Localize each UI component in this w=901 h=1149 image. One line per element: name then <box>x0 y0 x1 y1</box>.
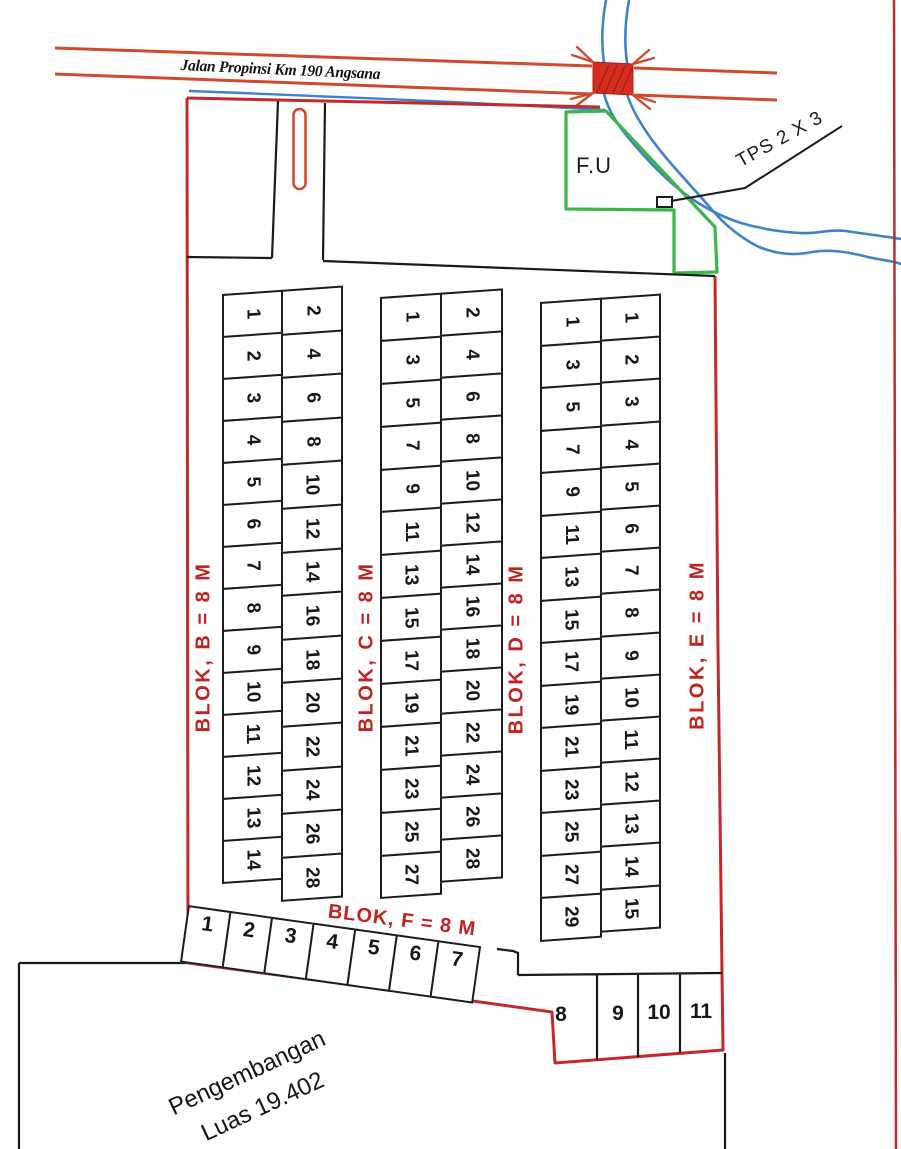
plot-number: 15 <box>619 897 641 920</box>
plot-number: 11 <box>690 1000 712 1024</box>
plot-number: 17 <box>560 651 582 674</box>
plot-number: 23 <box>400 778 422 801</box>
plot-cell: 29 <box>540 893 602 942</box>
blok-d-column: 1357911131517192123252729 <box>540 298 602 942</box>
plot-number: 1 <box>241 308 263 320</box>
plot-cell: 3 <box>380 336 442 385</box>
plot-number: 13 <box>560 566 582 589</box>
plot-cell: 8 <box>600 589 661 637</box>
plot-cell: 15 <box>600 884 661 932</box>
road-line-lower <box>55 74 777 100</box>
lower-step-lines <box>497 949 722 1060</box>
plot-number: 4 <box>619 438 641 450</box>
site-plan-canvas: Jalan Propinsi Km 190 Angsana F.U TPS 2 … <box>0 0 901 1149</box>
plot-cell: 3 <box>222 374 283 422</box>
plot-cell: 15 <box>380 593 442 642</box>
plot-number: 26 <box>460 805 482 828</box>
plot-number: 5 <box>560 401 582 413</box>
plot-number: 8 <box>555 1003 567 1027</box>
blok-b-strip: 1234567891011121314 24681012141618202224… <box>222 286 343 907</box>
plot-number: 19 <box>560 693 582 716</box>
plot-number: 13 <box>241 807 263 830</box>
plot-cell: 3 <box>540 340 602 389</box>
plot-number: 29 <box>560 906 582 929</box>
blok-c-strip: 13579111315171921232527 2468101214161820… <box>380 288 503 899</box>
plot-cell: 10 <box>222 668 283 716</box>
plot-number: 28 <box>460 847 482 870</box>
plot-number: 4 <box>301 348 323 360</box>
plot-cell: 12 <box>281 504 343 554</box>
plot-number: 9 <box>560 486 582 498</box>
plot-number: 25 <box>560 821 582 844</box>
plot-number: 2 <box>460 307 482 319</box>
plot-number: 21 <box>560 736 582 759</box>
median-island <box>294 109 306 189</box>
plot-number: 27 <box>400 864 422 887</box>
plot-cell: 20 <box>440 666 503 714</box>
plot-cell: 10 <box>600 673 661 721</box>
plot-cell: 7 <box>429 940 481 1004</box>
plot-number: 3 <box>619 396 641 408</box>
plot-number: 15 <box>400 606 422 629</box>
plot-cell: 18 <box>440 624 503 672</box>
plot-cell: 13 <box>222 794 283 842</box>
plot-number: 6 <box>301 392 323 404</box>
plot-number: 12 <box>241 765 263 788</box>
plot-cell: 4 <box>440 330 503 378</box>
plot-cell: 10 <box>440 456 503 504</box>
plot-cell: 4 <box>600 420 661 468</box>
plot-cell: 12 <box>440 498 503 546</box>
plot-cell: 11 <box>540 510 602 559</box>
plot-number: 6 <box>408 941 423 966</box>
plot-cell: 9 <box>540 468 602 517</box>
plot-cell: 16 <box>281 591 343 641</box>
plot-cell: 26 <box>281 809 343 859</box>
plot-cell: 22 <box>281 721 343 771</box>
blok-e-label: BLOK, E = 8 M <box>687 560 710 730</box>
plot-number: 11 <box>560 524 582 546</box>
plot-cell: 6 <box>222 500 283 548</box>
facility-boundary <box>566 111 717 273</box>
plot-cell: 1 <box>540 298 602 347</box>
plot-cell: 26 <box>440 792 503 840</box>
plot-cell: 28 <box>281 852 343 902</box>
plot-cell: 4 <box>281 329 343 379</box>
tps-marker <box>657 197 672 207</box>
blok-b-label: BLOK, B = 8 M <box>193 562 216 733</box>
plot-cell: 13 <box>380 550 442 599</box>
plot-number: 25 <box>400 821 422 844</box>
plot-cell: 16 <box>440 582 503 630</box>
plot-number: 11 <box>242 723 264 745</box>
plot-number: 7 <box>560 444 582 456</box>
plot-number: 1 <box>400 311 422 323</box>
plot-number: 5 <box>241 476 263 488</box>
plot-number: 3 <box>560 359 582 371</box>
plot-number: 8 <box>619 607 641 619</box>
blok-c-column-2: 246810121416182022242628 <box>440 288 503 882</box>
blok-b-column-2: 246810121416182022242628 <box>281 286 343 903</box>
plot-number: 28 <box>301 866 323 889</box>
public-facility-label: F.U <box>576 153 612 179</box>
plot-cell: 14 <box>281 547 343 597</box>
plot-cell: 7 <box>540 425 602 474</box>
plot-cell: 22 <box>440 708 503 756</box>
plot-number: 6 <box>460 391 482 403</box>
plot-cell: 1 <box>380 293 442 342</box>
map-edge-line <box>894 0 896 1149</box>
plot-cell: 27 <box>380 850 442 899</box>
plot-number: 10 <box>301 474 323 497</box>
plot-number: 19 <box>400 692 422 715</box>
plot-cell: 5 <box>540 383 602 432</box>
plot-number: 20 <box>460 679 482 702</box>
plot-number: 14 <box>619 855 641 878</box>
plot-cell: 11 <box>600 715 661 763</box>
plot-cell: 18 <box>281 634 343 684</box>
plot-number: 7 <box>619 565 641 577</box>
plot-cell: 17 <box>380 636 442 685</box>
plot-number: 4 <box>460 349 482 361</box>
plot-number: 6 <box>241 518 263 530</box>
plot-cell: 8 <box>440 414 503 462</box>
plot-cell: 14 <box>440 540 503 588</box>
plot-cell: 13 <box>540 553 602 602</box>
plot-number: 8 <box>241 602 263 614</box>
plot-number: 14 <box>301 561 323 584</box>
plot-cell: 5 <box>222 458 283 506</box>
plot-number: 20 <box>301 692 323 715</box>
plot-cell: 19 <box>540 680 602 729</box>
plot-number: 13 <box>619 813 641 836</box>
plot-cell: 21 <box>380 722 442 771</box>
plot-number: 1 <box>560 316 582 328</box>
plot-number: 10 <box>241 681 263 704</box>
plot-number: 27 <box>560 863 582 886</box>
plot-number: 11 <box>400 521 422 543</box>
plot-number: 4 <box>241 434 263 446</box>
plot-number: 11 <box>620 729 642 751</box>
plot-number: 2 <box>241 350 263 362</box>
plot-number: 22 <box>301 735 323 758</box>
plot-cell: 2 <box>440 288 503 336</box>
plot-cell: 14 <box>600 842 661 890</box>
plot-cell: 10 <box>281 460 343 510</box>
plot-cell: 7 <box>600 547 661 595</box>
plot-cell: 6 <box>281 373 343 423</box>
plot-cell: 9 <box>380 464 442 513</box>
plot-number: 5 <box>366 936 381 961</box>
plot-cell: 2 <box>281 286 343 336</box>
plot-cell: 5 <box>380 378 442 427</box>
plot-number: 23 <box>560 778 582 801</box>
plot-cell: 23 <box>540 765 602 814</box>
plot-cell: 8 <box>281 416 343 466</box>
plot-number: 18 <box>460 637 482 660</box>
plot-cell: 6 <box>440 372 503 420</box>
blok-d-label: BLOK, D = 8 M <box>506 564 529 735</box>
plot-number: 9 <box>400 483 422 495</box>
plot-number: 26 <box>301 822 323 845</box>
plot-number: 2 <box>242 918 257 943</box>
plot-number: 16 <box>460 595 482 618</box>
plot-number: 1 <box>200 912 215 937</box>
plot-cell: 25 <box>540 808 602 857</box>
plot-cell: 6 <box>600 504 661 552</box>
plot-number: 9 <box>241 644 263 656</box>
plot-number: 8 <box>301 435 323 447</box>
blok-d-e-strip: 1357911131517192123252729 12345678910111… <box>540 294 661 942</box>
river-left-bank <box>602 0 901 239</box>
plot-number: 1 <box>619 312 641 324</box>
river-right-bank <box>625 0 901 264</box>
plot-number: 21 <box>400 735 422 758</box>
plot-number: 13 <box>400 563 422 586</box>
plot-cell: 20 <box>281 678 343 728</box>
plot-number: 9 <box>619 649 641 661</box>
plot-number: 7 <box>400 440 422 452</box>
development-area-lines <box>19 963 725 1149</box>
plot-number: 14 <box>460 553 482 576</box>
plot-cell: 13 <box>600 800 661 848</box>
plot-number: 24 <box>301 779 323 802</box>
plot-cell: 17 <box>540 638 602 687</box>
plot-number: 18 <box>301 648 323 671</box>
plot-cell: 4 <box>222 416 283 464</box>
blok-c-column-1: 13579111315171921232527 <box>380 293 442 900</box>
plot-number: 7 <box>450 947 465 972</box>
plot-cell: 11 <box>222 710 283 758</box>
plot-number: 10 <box>647 1001 670 1025</box>
plot-cell: 25 <box>380 807 442 856</box>
plot-number: 6 <box>619 523 641 535</box>
road-line-upper <box>55 48 777 73</box>
plot-number: 3 <box>241 392 263 404</box>
plot-number: 2 <box>301 304 323 316</box>
plot-cell: 1 <box>222 290 283 338</box>
plot-number: 4 <box>325 930 340 955</box>
plot-number: 16 <box>301 604 323 627</box>
entrance-road-lines <box>187 101 715 276</box>
plot-number: 5 <box>400 397 422 409</box>
plot-cell: 15 <box>540 595 602 644</box>
plot-cell: 9 <box>222 626 283 674</box>
plot-number: 14 <box>241 849 263 872</box>
plot-cell: 7 <box>380 421 442 470</box>
plot-number: 10 <box>619 686 641 709</box>
plot-number: 24 <box>460 763 482 786</box>
plot-cell: 7 <box>222 542 283 590</box>
plot-cell: 3 <box>600 378 661 426</box>
plot-number: 17 <box>400 649 422 672</box>
plot-number: 15 <box>560 608 582 631</box>
plot-number: 10 <box>460 469 482 492</box>
plot-cell: 24 <box>281 765 343 815</box>
plot-cell: 12 <box>222 752 283 800</box>
plot-number: 3 <box>283 924 298 949</box>
plot-number: 12 <box>460 511 482 534</box>
plot-number: 7 <box>241 560 263 572</box>
plot-cell: 12 <box>600 758 661 806</box>
plot-cell: 2 <box>600 336 661 384</box>
plot-cell: 27 <box>540 850 602 899</box>
plot-cell: 8 <box>222 584 283 632</box>
plot-cell: 2 <box>222 332 283 380</box>
plot-number: 9 <box>612 1002 624 1026</box>
plot-cell: 5 <box>600 462 661 510</box>
plot-cell: 11 <box>380 507 442 556</box>
plot-number: 12 <box>619 770 641 793</box>
plot-cell: 14 <box>222 836 283 884</box>
plot-cell: 23 <box>380 764 442 813</box>
plot-cell: 19 <box>380 679 442 728</box>
plot-number: 2 <box>619 354 641 366</box>
plot-number: 5 <box>619 480 641 492</box>
blok-e-column: 123456789101112131415 <box>600 294 661 933</box>
blok-c-label: BLOK, C = 8 M <box>356 562 379 733</box>
plot-cell: 9 <box>600 631 661 679</box>
plot-number: 12 <box>301 517 323 540</box>
plot-cell: 28 <box>440 834 503 882</box>
plot-cell: 21 <box>540 723 602 772</box>
plot-number: 22 <box>460 721 482 744</box>
blok-b-column-1: 1234567891011121314 <box>222 290 283 884</box>
plot-cell: 24 <box>440 750 503 798</box>
plot-cell: 1 <box>600 294 661 342</box>
plot-number: 8 <box>460 433 482 445</box>
plot-number: 3 <box>400 354 422 366</box>
